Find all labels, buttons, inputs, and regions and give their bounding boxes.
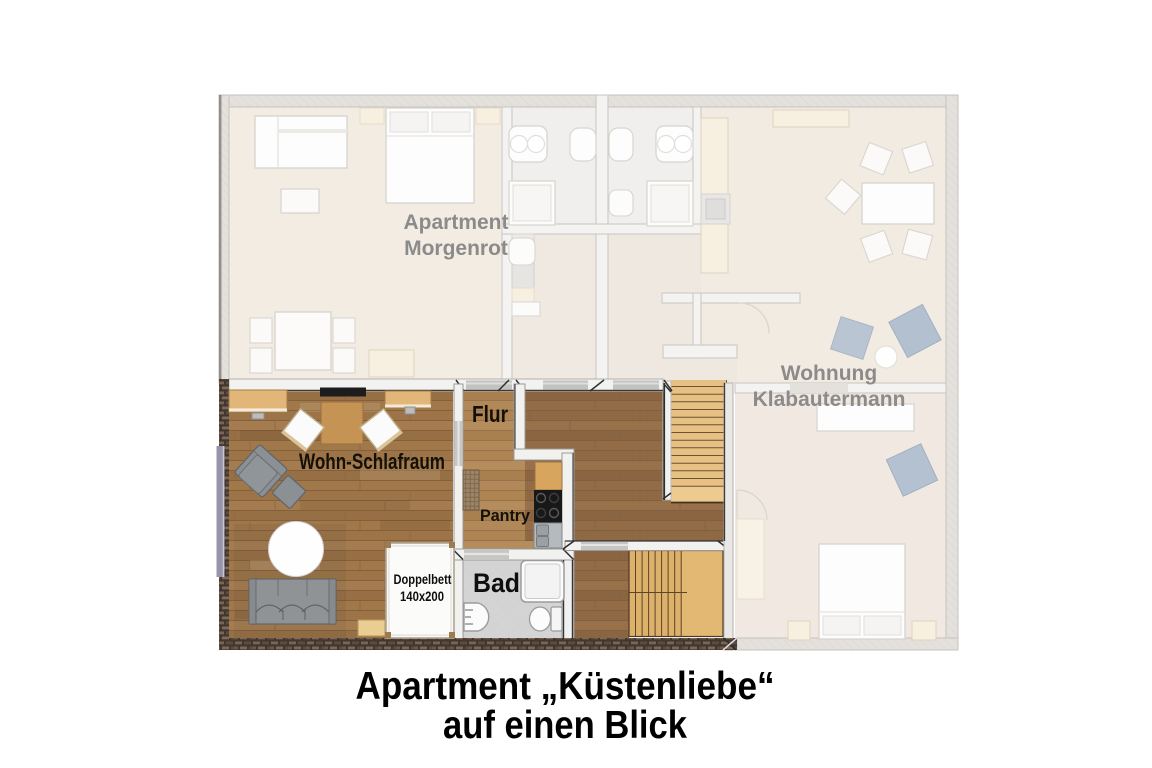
svg-text:Klabautermann: Klabautermann	[753, 388, 906, 411]
svg-text:Flur: Flur	[472, 401, 508, 427]
svg-text:Pantry: Pantry	[480, 507, 531, 525]
svg-text:Morgenrot: Morgenrot	[404, 237, 508, 260]
svg-text:Apartment „Küstenliebe“: Apartment „Küstenliebe“	[356, 665, 775, 708]
svg-text:Bad: Bad	[473, 568, 520, 598]
svg-text:140x200: 140x200	[400, 588, 444, 604]
svg-text:Apartment: Apartment	[403, 211, 508, 234]
svg-text:auf einen Blick: auf einen Blick	[443, 704, 687, 747]
svg-text:Wohnung: Wohnung	[781, 362, 877, 385]
svg-text:Wohn-Schlafraum: Wohn-Schlafraum	[299, 449, 445, 474]
svg-text:Doppelbett: Doppelbett	[394, 572, 452, 587]
